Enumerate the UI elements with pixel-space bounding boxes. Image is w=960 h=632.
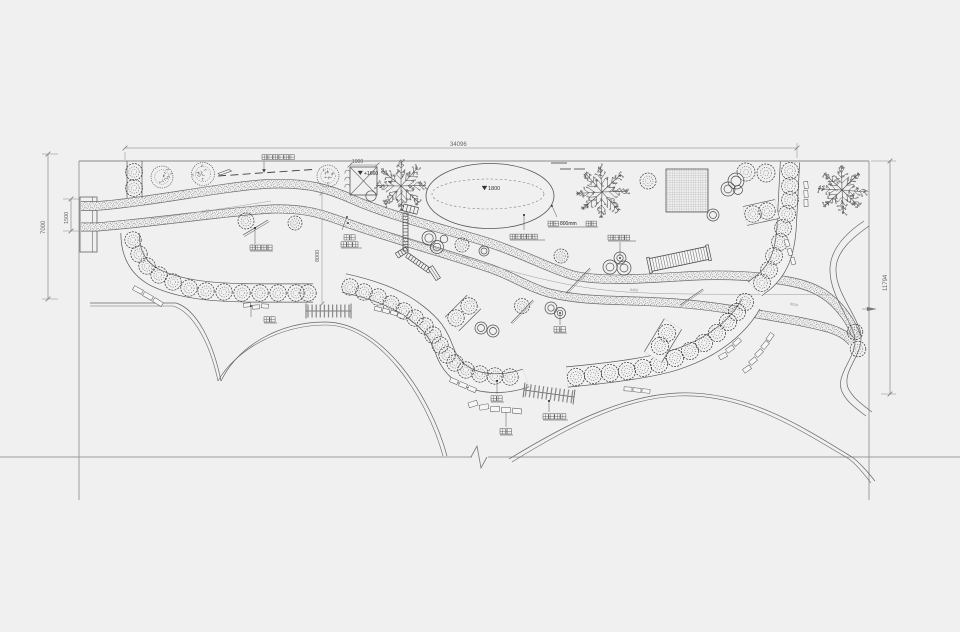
svg-text:8000: 8000 <box>315 250 321 262</box>
svg-text:800mm: 800mm <box>560 221 577 227</box>
svg-text:7000: 7000 <box>41 220 47 234</box>
svg-text:11794: 11794 <box>883 274 889 291</box>
svg-text:+1660: +1660 <box>364 171 378 177</box>
svg-text:1000: 1000 <box>352 159 363 165</box>
svg-text:1800: 1800 <box>488 186 500 192</box>
svg-text:6450: 6450 <box>630 288 638 292</box>
svg-text:34096: 34096 <box>450 142 467 148</box>
svg-text:1500: 1500 <box>64 212 70 224</box>
